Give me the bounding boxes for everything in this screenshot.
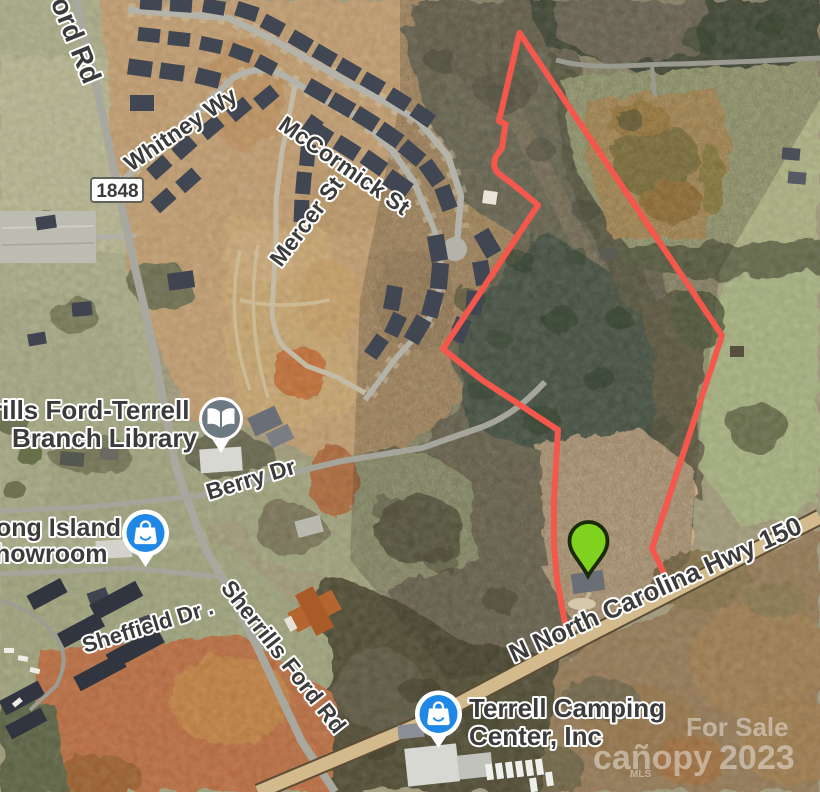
svg-text:Center, Inc: Center, Inc: [469, 721, 602, 751]
svg-text:For Sale: For Sale: [686, 712, 789, 742]
svg-text:Terrell Camping: Terrell Camping: [469, 693, 665, 723]
svg-text:2023: 2023: [719, 739, 795, 777]
svg-text:ong Island: ong Island: [0, 514, 121, 542]
svg-text:cañopy: cañopy: [593, 739, 712, 777]
svg-text:Branch Library: Branch Library: [12, 423, 197, 453]
svg-text:MLS: MLS: [630, 769, 651, 780]
svg-text:howroom: howroom: [0, 540, 108, 568]
svg-text:rills Ford-Terrell: rills Ford-Terrell: [0, 395, 189, 425]
svg-text:1848: 1848: [96, 181, 138, 202]
